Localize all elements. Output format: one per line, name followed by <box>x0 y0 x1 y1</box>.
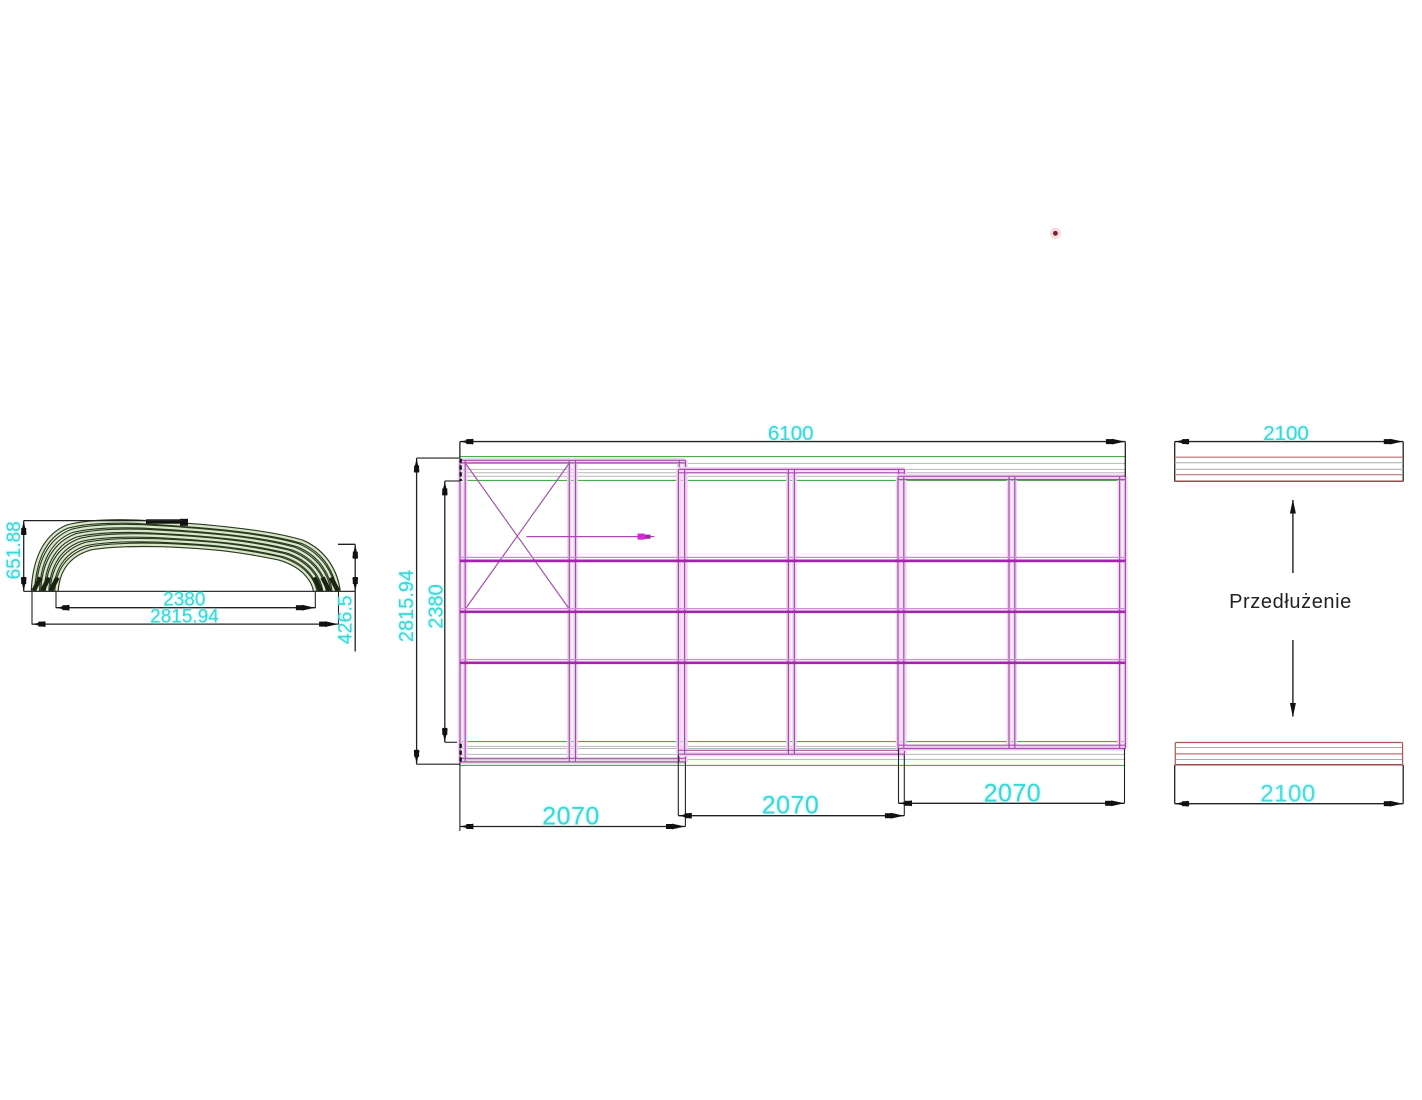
svg-text:2070: 2070 <box>762 792 820 820</box>
svg-text:426.5: 426.5 <box>334 595 356 644</box>
svg-text:6100: 6100 <box>768 422 814 445</box>
svg-text:2380: 2380 <box>426 584 448 629</box>
svg-text:2100: 2100 <box>1260 781 1315 808</box>
svg-text:Przedłużenie: Przedłużenie <box>1229 591 1352 613</box>
svg-text:2070: 2070 <box>542 803 600 831</box>
svg-text:651.88: 651.88 <box>4 521 25 579</box>
svg-text:2815.94: 2815.94 <box>396 570 418 642</box>
svg-text:2815.94: 2815.94 <box>150 606 219 627</box>
svg-text:2100: 2100 <box>1263 422 1309 445</box>
svg-text:2070: 2070 <box>984 779 1042 807</box>
